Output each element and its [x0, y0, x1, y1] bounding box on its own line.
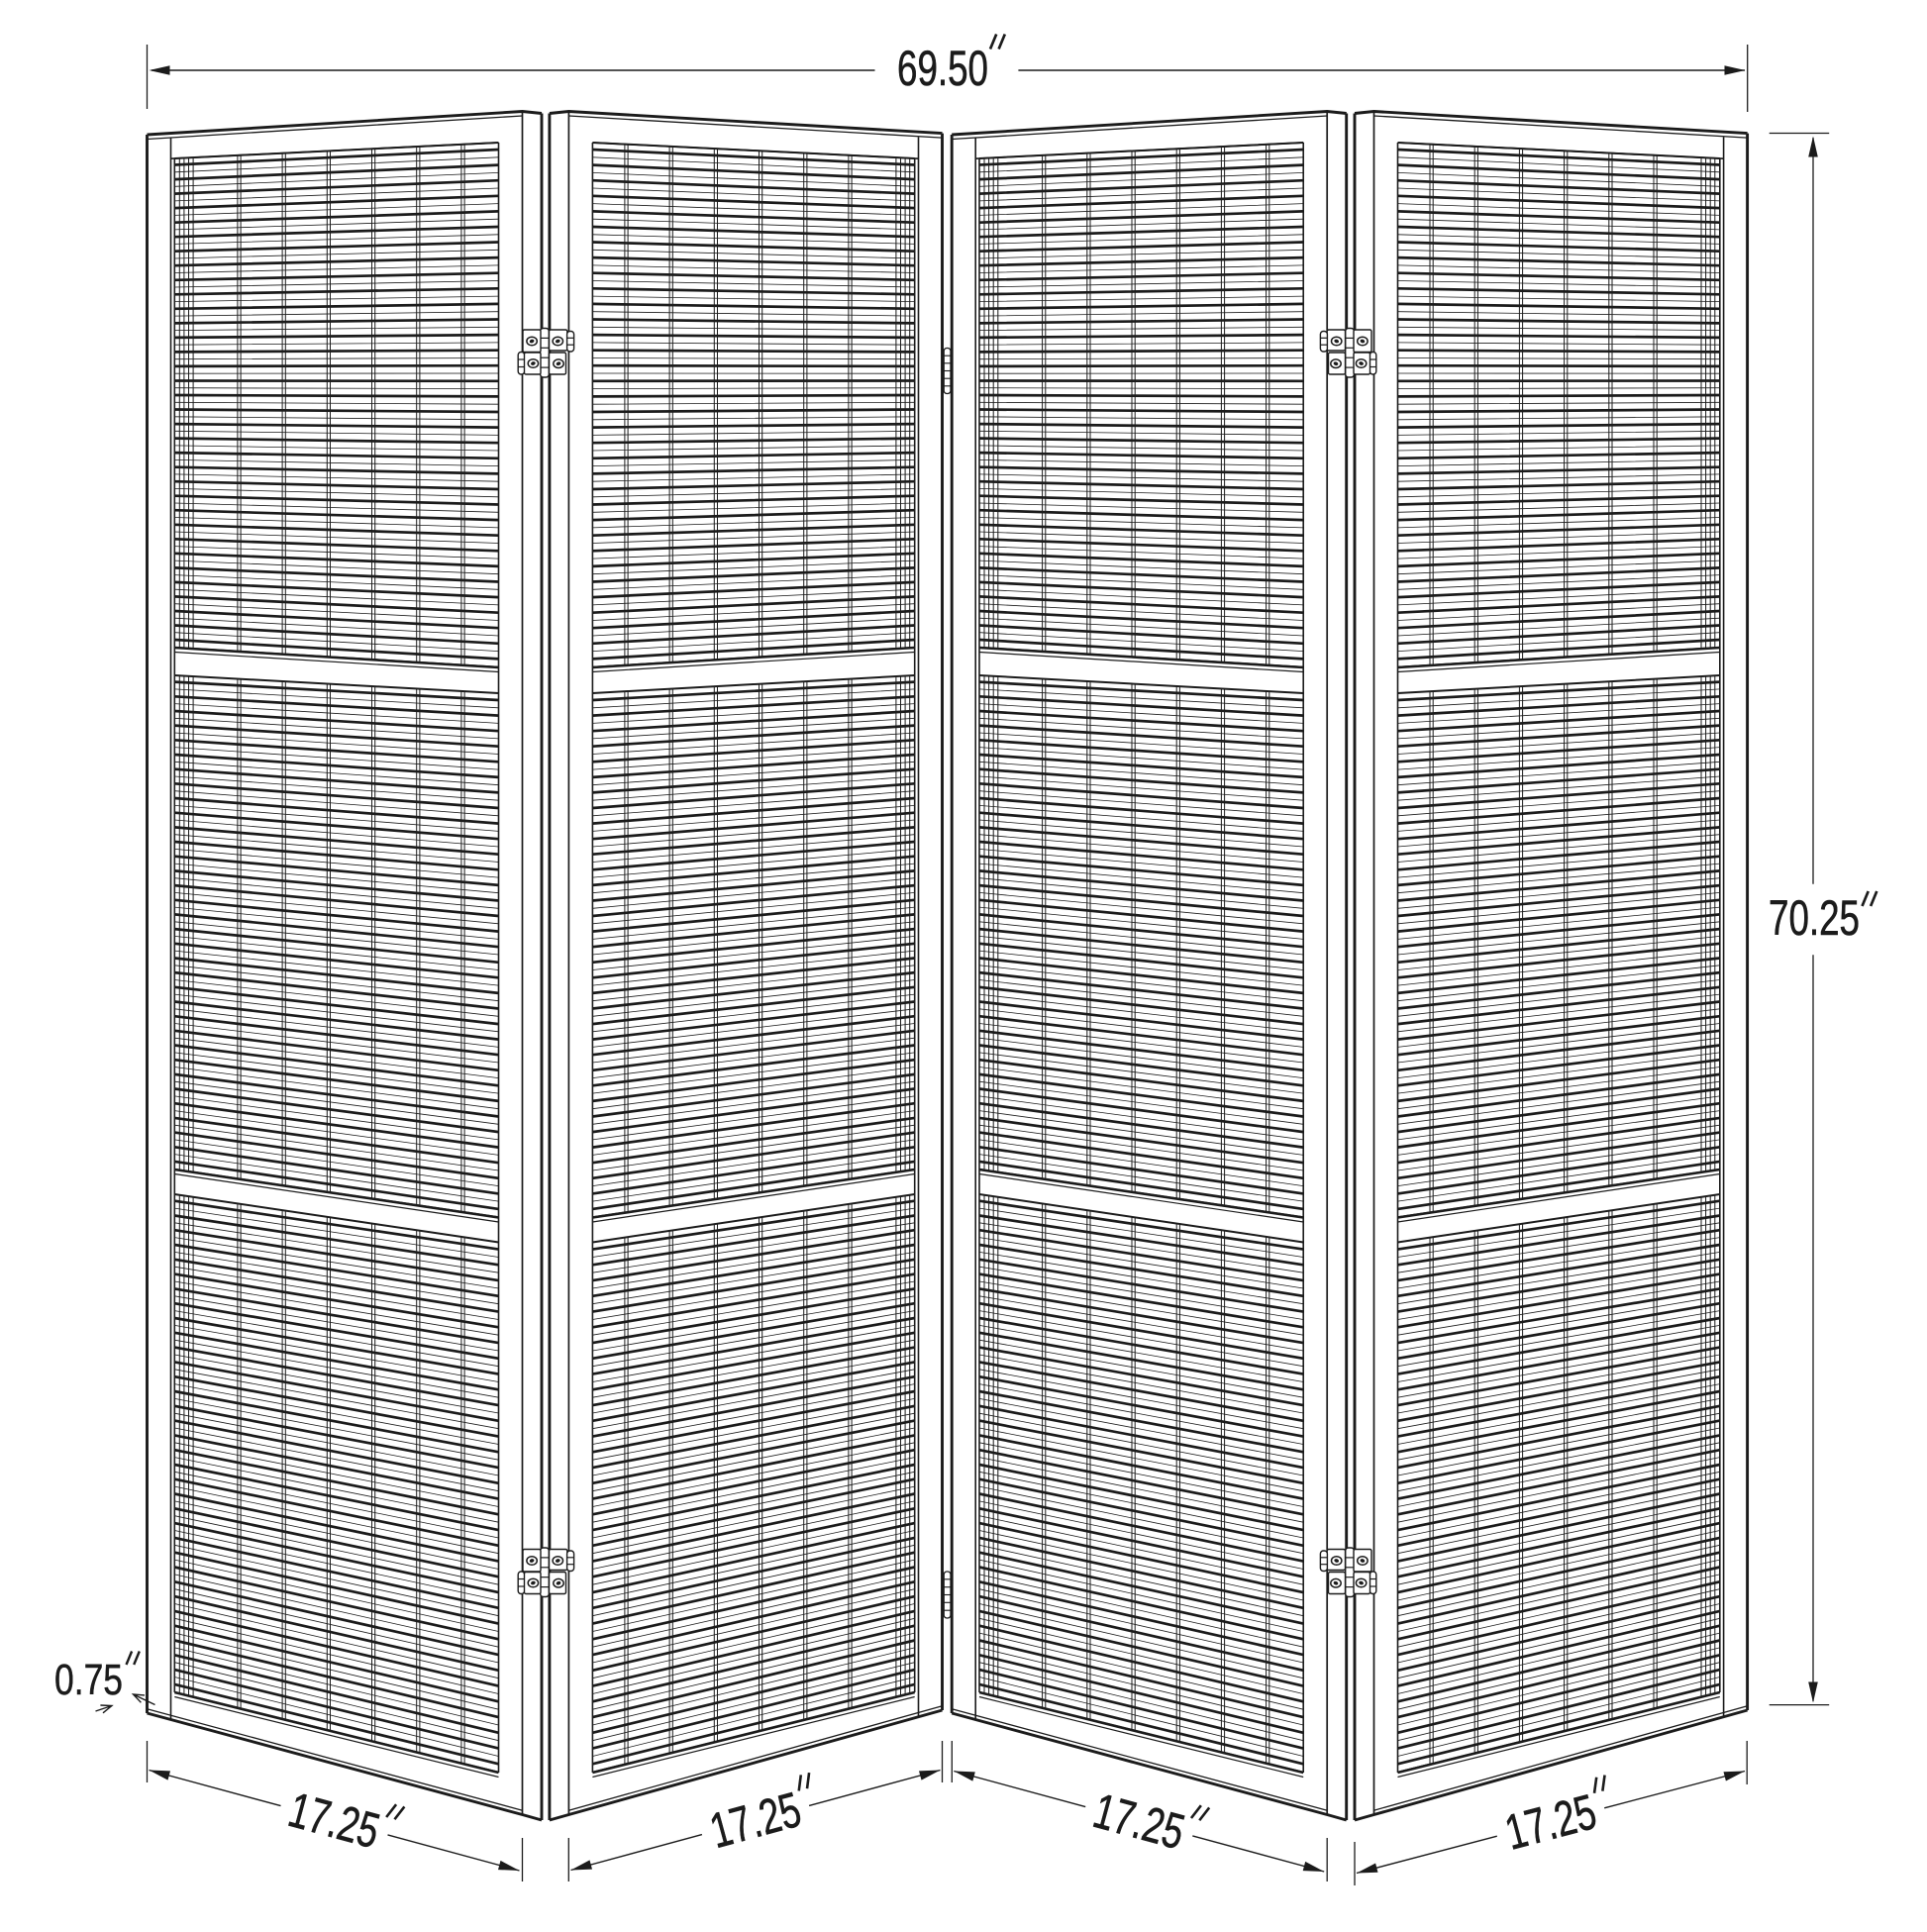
svg-text:0.75: 0.75: [54, 1656, 123, 1704]
svg-text:69.50: 69.50: [897, 41, 988, 96]
svg-text:70.25: 70.25: [1769, 890, 1860, 946]
